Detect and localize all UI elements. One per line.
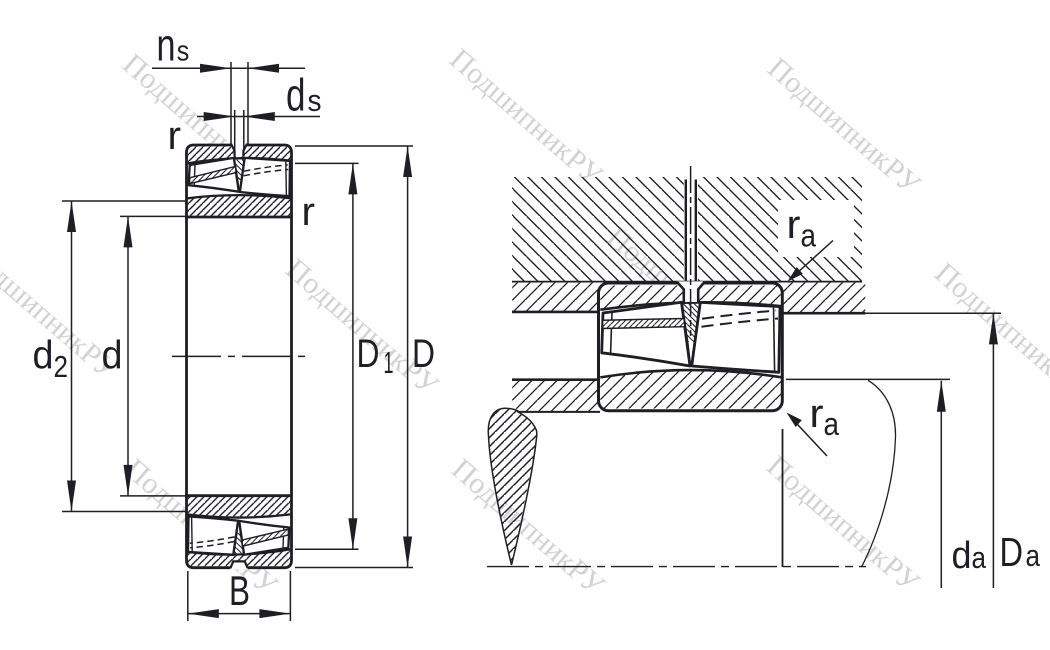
svg-text:d: d [33,333,54,377]
svg-text:r: r [810,392,824,436]
svg-text:d: d [102,333,123,377]
svg-text:a: a [801,218,817,254]
svg-text:r: r [787,203,801,247]
svg-text:r: r [168,114,182,158]
svg-text:a: a [972,540,987,575]
svg-text:D: D [1000,529,1024,575]
svg-text:d: d [952,535,972,577]
svg-text:d: d [286,70,306,121]
svg-text:2: 2 [54,349,69,384]
svg-text:a: a [1026,538,1041,573]
svg-text:B: B [229,567,250,614]
svg-text:n: n [157,20,176,71]
svg-text:s: s [177,36,190,68]
svg-text:a: a [824,406,840,442]
svg-text:s: s [308,83,322,118]
svg-text:D: D [357,332,380,376]
svg-text:r: r [302,190,316,234]
svg-text:D: D [412,332,435,376]
svg-text:1: 1 [384,345,394,380]
